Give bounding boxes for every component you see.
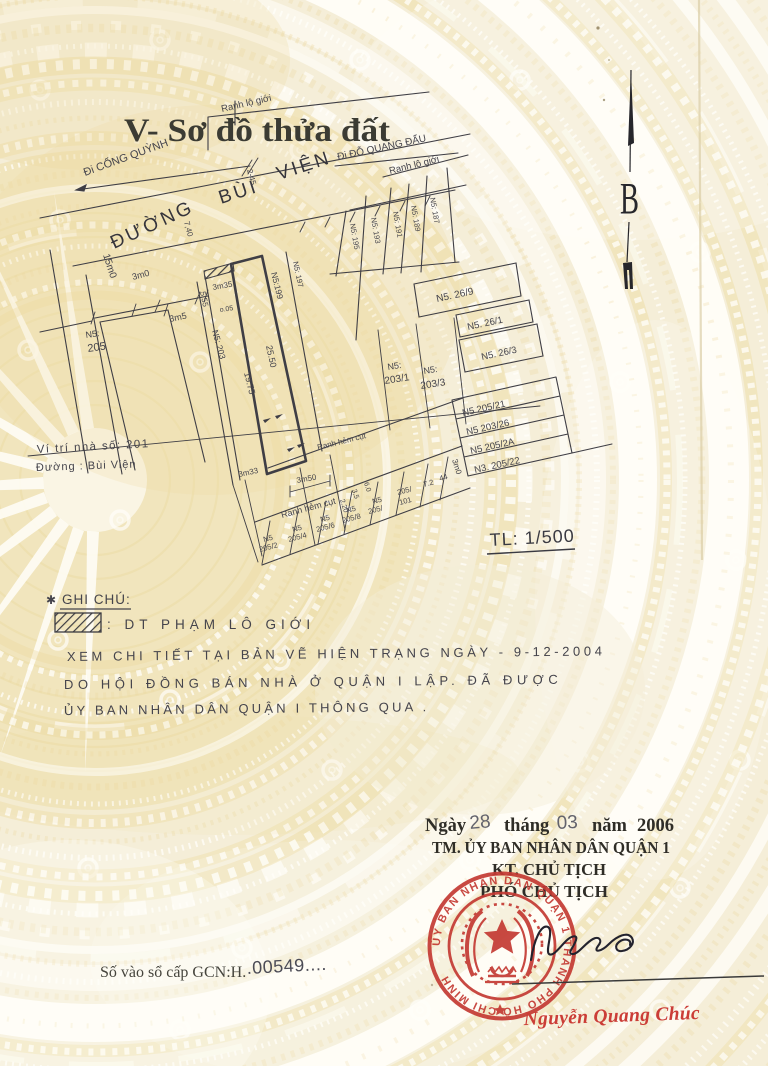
svg-text:Ngày: Ngày bbox=[425, 816, 467, 836]
svg-text:tháng: tháng bbox=[504, 816, 550, 836]
svg-text:GHI CHÚ:: GHI CHÚ: bbox=[62, 592, 131, 607]
svg-text:205/4: 205/4 bbox=[287, 530, 307, 544]
svg-text:N5:: N5: bbox=[423, 364, 438, 376]
svg-text:N5:: N5: bbox=[387, 360, 402, 372]
svg-text:N5:: N5: bbox=[85, 328, 100, 340]
svg-text:3m33: 3m33 bbox=[238, 466, 260, 479]
svg-text:N5: 189: N5: 189 bbox=[409, 205, 422, 232]
svg-text:3m5: 3m5 bbox=[168, 311, 187, 324]
svg-text:XEM CHI TIẾT TẠI BẢN VẼ HIỆN T: XEM CHI TIẾT TẠI BẢN VẼ HIỆN TRẠNG NGÀY … bbox=[67, 643, 606, 664]
svg-text:3m0: 3m0 bbox=[131, 268, 151, 282]
svg-text:205/: 205/ bbox=[367, 503, 384, 516]
svg-text:.00549....: .00549.... bbox=[246, 954, 327, 978]
svg-text:N5 205/2A: N5 205/2A bbox=[469, 436, 516, 457]
svg-text:N5 203/26: N5 203/26 bbox=[465, 418, 510, 438]
svg-text:N5. 26/1: N5. 26/1 bbox=[466, 315, 503, 333]
svg-text:N5: 191: N5: 191 bbox=[391, 211, 404, 238]
svg-text:7.2: 7.2 bbox=[422, 478, 434, 489]
svg-text:N3. 205/22: N3. 205/22 bbox=[473, 455, 521, 476]
svg-text:✱: ✱ bbox=[46, 593, 56, 607]
svg-text:25.50: 25.50 bbox=[264, 344, 278, 368]
svg-text:03: 03 bbox=[556, 812, 578, 834]
svg-text:N5: 195: N5: 195 bbox=[348, 223, 361, 250]
svg-text:Nguyễn Quang Chúc: Nguyễn Quang Chúc bbox=[522, 1003, 700, 1030]
svg-text:N5: 193: N5: 193 bbox=[369, 217, 382, 244]
svg-text:Ranh hẻm cụt: Ranh hẻm cụt bbox=[316, 431, 367, 452]
svg-text:6.0: 6.0 bbox=[362, 481, 372, 493]
svg-text:101: 101 bbox=[398, 495, 412, 507]
svg-text:năm: năm bbox=[592, 816, 628, 836]
svg-text:3,5: 3,5 bbox=[350, 488, 360, 500]
svg-text:44: 44 bbox=[438, 472, 448, 483]
svg-text:N5. 26/3: N5. 26/3 bbox=[480, 345, 517, 363]
svg-text:205/: 205/ bbox=[396, 484, 413, 497]
svg-text:7,40: 7,40 bbox=[182, 220, 195, 238]
svg-text:3m50: 3m50 bbox=[296, 473, 318, 485]
svg-text:203/1: 203/1 bbox=[384, 372, 411, 387]
svg-text:205/8: 205/8 bbox=[341, 511, 361, 525]
svg-text:5.55: 5.55 bbox=[198, 291, 210, 309]
svg-text:N5: 187: N5: 187 bbox=[428, 197, 441, 224]
svg-text:Ranh lộ giới: Ranh lộ giới bbox=[220, 93, 272, 115]
svg-text:ỦY BAN NHÂN DÂN QUẬN I THÔNG: ỦY BAN NHÂN DÂN QUẬN I THÔNG QUA . bbox=[64, 699, 430, 718]
svg-text:Số vào sổ cấp GCN:H.: Số vào sổ cấp GCN:H. bbox=[100, 964, 246, 981]
svg-text:19.75: 19.75 bbox=[242, 371, 257, 395]
svg-text:205/2: 205/2 bbox=[258, 540, 278, 554]
svg-text:DO HỘI ĐỒNG BÁN NHÀ Ở QUẬN I L: DO HỘI ĐỒNG BÁN NHÀ Ở QUẬN I LẬP. ĐÃ ĐƯỢ… bbox=[64, 672, 563, 692]
svg-text:205/6: 205/6 bbox=[315, 520, 335, 534]
svg-text:N5: 203: N5: 203 bbox=[210, 329, 228, 361]
svg-text:TL: 1/500: TL: 1/500 bbox=[489, 526, 575, 550]
svg-text:o.05: o.05 bbox=[219, 305, 234, 314]
svg-text:N5 205/21: N5 205/21 bbox=[461, 399, 506, 419]
svg-text:15m0: 15m0 bbox=[100, 253, 118, 281]
svg-text:2006: 2006 bbox=[637, 816, 674, 836]
svg-text:: DT PHẠM LÔ GIỚI: : DT PHẠM LÔ GIỚI bbox=[107, 617, 315, 632]
svg-text:205: 205 bbox=[87, 341, 107, 355]
svg-text:28: 28 bbox=[469, 811, 492, 834]
svg-text:B: B bbox=[620, 174, 639, 223]
svg-text:N5. 26/9: N5. 26/9 bbox=[435, 286, 475, 305]
svg-text:VIỆN: VIỆN bbox=[274, 146, 334, 184]
svg-text:3m0: 3m0 bbox=[450, 458, 464, 476]
svg-text:V- Sơ đồ thửa đất: V- Sơ đồ thửa đất bbox=[124, 113, 390, 149]
svg-text:TM. ỦY BAN NHÂN DÂN QUẬN 1: TM. ỦY BAN NHÂN DÂN QUẬN 1 bbox=[432, 838, 670, 857]
svg-text:Ví trí nhà số: 201: Ví trí nhà số: 201 bbox=[37, 438, 150, 456]
svg-text:2.20: 2.20 bbox=[338, 498, 349, 513]
svg-text:3m35: 3m35 bbox=[212, 280, 234, 292]
svg-text:N5: 197: N5: 197 bbox=[291, 261, 305, 289]
